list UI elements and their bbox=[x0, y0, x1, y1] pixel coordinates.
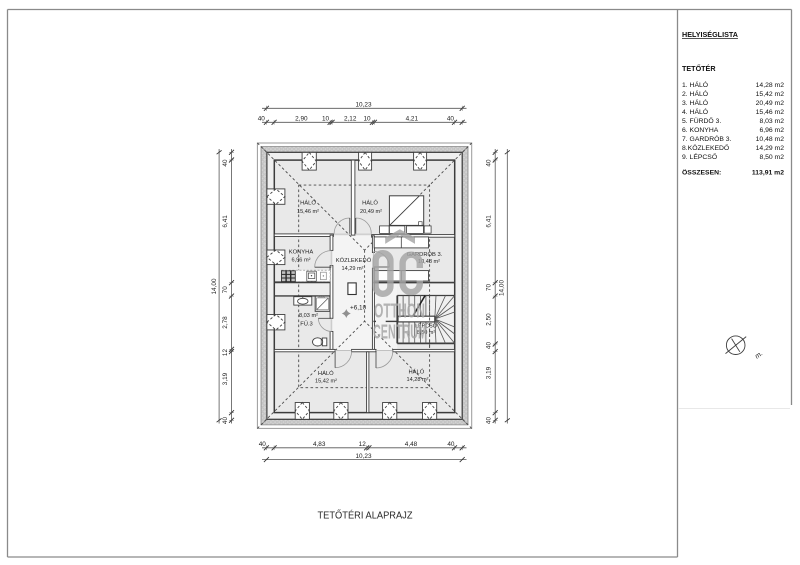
svg-text:80x80: 80x80 bbox=[318, 295, 326, 299]
svg-text:10: 10 bbox=[363, 116, 371, 123]
svg-text:8.KÖZLEKEDŐ: 8.KÖZLEKEDŐ bbox=[682, 143, 729, 152]
svg-text:15,42 m²: 15,42 m² bbox=[315, 379, 337, 385]
svg-text:ÖSSZESEN:: ÖSSZESEN: bbox=[682, 168, 721, 177]
svg-text:6,96 m²: 6,96 m² bbox=[292, 257, 311, 263]
svg-text:20,49 m2: 20,49 m2 bbox=[756, 100, 785, 107]
svg-text:6,96 m2: 6,96 m2 bbox=[759, 127, 784, 134]
svg-text:40: 40 bbox=[486, 159, 493, 167]
svg-text:4,48: 4,48 bbox=[405, 441, 418, 448]
svg-text:4,83: 4,83 bbox=[313, 441, 326, 448]
svg-text:4,21: 4,21 bbox=[406, 116, 419, 123]
svg-text:HELYISÉGLISTA: HELYISÉGLISTA bbox=[682, 30, 738, 39]
svg-text:40: 40 bbox=[259, 441, 267, 448]
svg-text:113,91 m2: 113,91 m2 bbox=[752, 170, 784, 177]
svg-text:10: 10 bbox=[322, 116, 330, 123]
svg-text:2,78: 2,78 bbox=[222, 316, 229, 329]
svg-text:KÖZLEKEDŐ: KÖZLEKEDŐ bbox=[336, 257, 372, 264]
svg-text:3,19: 3,19 bbox=[486, 366, 493, 379]
svg-text:20,49 m²: 20,49 m² bbox=[360, 209, 382, 215]
svg-text:1. HÁLÓ: 1. HÁLÓ bbox=[682, 80, 708, 89]
svg-text:14,00: 14,00 bbox=[499, 280, 506, 296]
svg-text:40: 40 bbox=[258, 116, 266, 123]
svg-text:12: 12 bbox=[222, 349, 229, 357]
svg-text:FÜ.3: FÜ.3 bbox=[300, 320, 313, 327]
svg-text:15,46 m²: 15,46 m² bbox=[297, 209, 319, 215]
svg-text:8,03 m²: 8,03 m² bbox=[299, 313, 318, 319]
svg-text:6,41: 6,41 bbox=[486, 215, 493, 228]
svg-text:TETŐTÉRI ALAPRAJZ: TETŐTÉRI ALAPRAJZ bbox=[318, 508, 413, 522]
svg-text:HÁLÓ: HÁLÓ bbox=[362, 200, 378, 207]
svg-text:+6,10: +6,10 bbox=[350, 304, 367, 311]
svg-text:14,29 m²: 14,29 m² bbox=[341, 266, 363, 272]
svg-text:2,12: 2,12 bbox=[344, 116, 357, 123]
svg-text:2. HÁLÓ: 2. HÁLÓ bbox=[682, 89, 708, 98]
svg-text:4. HÁLÓ: 4. HÁLÓ bbox=[682, 107, 708, 116]
svg-text:14,29 m2: 14,29 m2 bbox=[756, 145, 785, 152]
svg-text:6,41: 6,41 bbox=[222, 215, 229, 228]
svg-text:CENTRUM: CENTRUM bbox=[373, 321, 427, 344]
svg-text:5. FÜRDŐ 3.: 5. FÜRDŐ 3. bbox=[682, 116, 721, 125]
svg-text:8,03 m2: 8,03 m2 bbox=[759, 118, 784, 125]
svg-text:HÁLÓ: HÁLÓ bbox=[409, 368, 425, 375]
svg-text:6. KONYHA: 6. KONYHA bbox=[682, 127, 719, 134]
svg-text:3. HÁLÓ: 3. HÁLÓ bbox=[682, 98, 708, 107]
svg-text:OTTHON: OTTHON bbox=[374, 299, 425, 322]
svg-text:40: 40 bbox=[447, 116, 455, 123]
svg-text:14,28 m²: 14,28 m² bbox=[406, 377, 428, 383]
svg-text:70: 70 bbox=[222, 286, 229, 294]
svg-text:15,46 m2: 15,46 m2 bbox=[756, 109, 785, 116]
svg-text:15,42 m2: 15,42 m2 bbox=[756, 91, 785, 98]
svg-text:10,23: 10,23 bbox=[356, 453, 372, 460]
svg-text:14,00: 14,00 bbox=[211, 278, 218, 294]
svg-text:HÁLÓ: HÁLÓ bbox=[300, 200, 316, 207]
svg-text:40: 40 bbox=[222, 417, 229, 425]
svg-text:9. LÉPCSŐ: 9. LÉPCSŐ bbox=[682, 152, 717, 161]
svg-text:40: 40 bbox=[486, 342, 493, 350]
svg-text:40: 40 bbox=[486, 417, 493, 425]
svg-text:2,50: 2,50 bbox=[486, 313, 493, 326]
svg-text:KONYHA: KONYHA bbox=[289, 250, 314, 256]
svg-text:40: 40 bbox=[222, 159, 229, 167]
svg-text:HÁLÓ: HÁLÓ bbox=[318, 370, 334, 377]
svg-text:8,50 m2: 8,50 m2 bbox=[759, 154, 784, 161]
svg-text:2,90: 2,90 bbox=[295, 116, 308, 123]
svg-text:12: 12 bbox=[359, 441, 367, 448]
svg-text:10,23: 10,23 bbox=[356, 102, 372, 109]
svg-text:7. GARDRÓB 3.: 7. GARDRÓB 3. bbox=[682, 134, 732, 143]
svg-text:70: 70 bbox=[486, 284, 493, 292]
svg-text:10,48 m2: 10,48 m2 bbox=[756, 136, 785, 143]
svg-text:3,19: 3,19 bbox=[222, 372, 229, 385]
svg-text:40: 40 bbox=[447, 441, 455, 448]
svg-text:14,28 m2: 14,28 m2 bbox=[756, 82, 785, 89]
svg-text:TETŐTÉR: TETŐTÉR bbox=[682, 64, 716, 73]
